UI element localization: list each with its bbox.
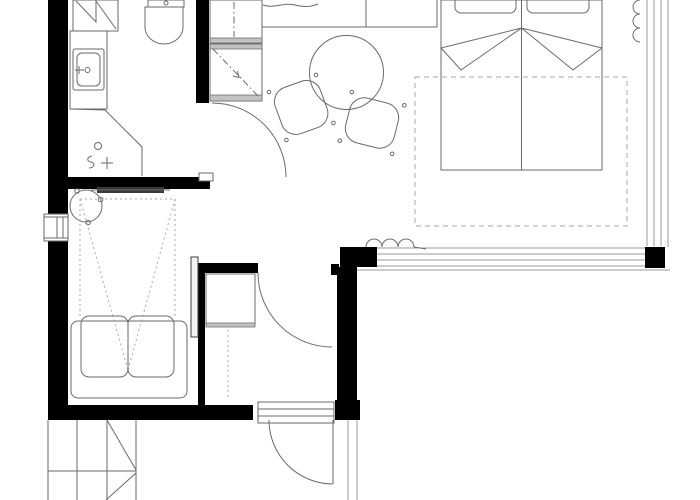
chair-foot (331, 121, 336, 126)
sliding-door-panel (191, 257, 198, 337)
sofa-body (71, 321, 187, 398)
wall-bedroom-corner (340, 247, 377, 267)
cone-diagonal-left (80, 199, 128, 370)
toilet-flush-icon (164, 1, 168, 5)
kitchen-sink-edge (263, 4, 318, 7)
windows (44, 0, 670, 270)
dining-area (267, 36, 407, 156)
window-south (357, 248, 670, 270)
chair-foot (390, 152, 394, 156)
wall-south-left (48, 405, 253, 420)
bathroom (70, 0, 213, 181)
toilet-bowl (145, 7, 183, 44)
outdoor-stairs (48, 420, 136, 500)
media-room (70, 187, 198, 398)
pillow-right (527, 0, 589, 13)
wall-hall-right (337, 267, 357, 416)
kitchen (210, 0, 437, 101)
shower-glass-screen (70, 109, 142, 176)
dining-chair-left (267, 73, 336, 143)
faucet-icon (85, 68, 90, 73)
wardrobe-cabinet (206, 274, 255, 325)
wall-window-post (645, 247, 665, 268)
chair-foot (338, 139, 342, 143)
wardrobe-cabinet-front (206, 323, 255, 327)
floor-plan (0, 0, 700, 500)
chair-seat (342, 95, 402, 152)
wall-bathroom-partition (196, 0, 209, 103)
bedroom (366, 0, 640, 249)
stair-break-line-2 (106, 473, 136, 500)
sofa-cushion-left (81, 316, 128, 377)
pillow-left (455, 0, 516, 13)
drain-squiggle-icon (88, 156, 94, 168)
entry-hall (206, 274, 255, 398)
entrance-door-swing (269, 420, 333, 484)
wall-entrance-stub (335, 400, 360, 420)
window-east (647, 0, 668, 247)
sofa-cushion-right (128, 316, 174, 377)
chair-foot (350, 90, 354, 94)
wall-hall-top (193, 263, 258, 273)
hall-door-swing (258, 273, 332, 347)
lounge-chair-knob (86, 220, 91, 225)
wall-hall-left (198, 263, 205, 405)
wall-jamb-stub (199, 181, 210, 189)
cone-diagonal-right (128, 199, 175, 370)
tall-unit (210, 0, 262, 43)
entrance-steps (258, 402, 334, 423)
appliance-unit-swing-diagonal (213, 49, 259, 97)
floor-drain-icon (95, 143, 102, 150)
appliance-unit-hatch-top (210, 44, 262, 49)
chair-seat (270, 76, 332, 138)
chair-foot (284, 138, 289, 143)
curtain-east-squiggle (633, 0, 640, 42)
round-table (310, 36, 384, 110)
blanket-fold-right (522, 28, 603, 70)
tall-unit-hatch (210, 38, 262, 43)
walls (48, 0, 665, 420)
shower-unit-fold-lines (76, 1, 116, 29)
bathroom-door-threshold (199, 173, 213, 181)
doors (212, 103, 357, 500)
blanket-fold-left (441, 28, 522, 70)
chair-foot (314, 73, 319, 78)
chair-foot (402, 103, 406, 107)
swing-arrowhead-icon (233, 71, 239, 78)
entrance-door (258, 402, 334, 484)
chair-foot (267, 90, 272, 95)
appliance-unit-hatch-bottom (210, 95, 262, 101)
floor-plan-drawing (0, 0, 700, 500)
stair-break-line-1 (107, 420, 136, 470)
lounge-chair (70, 190, 102, 222)
bathroom-door-swing (212, 103, 286, 177)
window-west (44, 214, 68, 241)
wall-west-lower (48, 241, 68, 405)
